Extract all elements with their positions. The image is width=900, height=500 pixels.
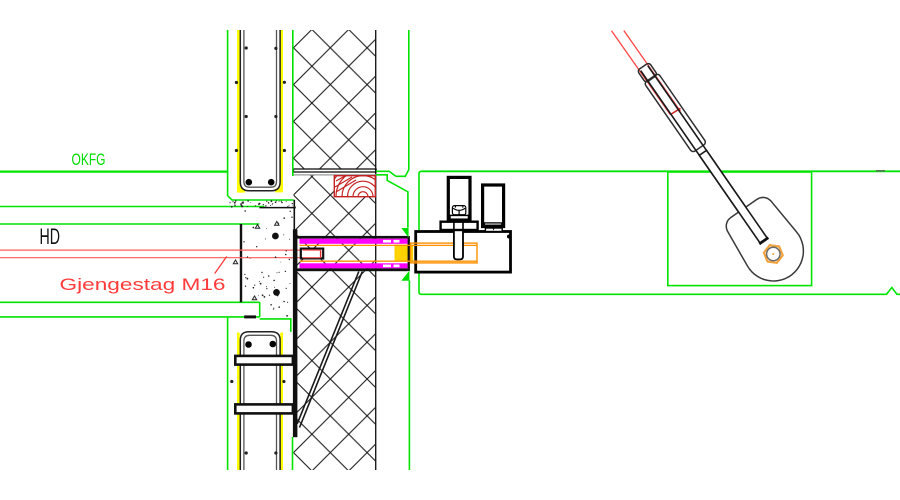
svg-text:Gjengestag M16: Gjengestag M16 <box>60 276 226 294</box>
svg-text:HD: HD <box>40 224 61 249</box>
svg-text:OKFG: OKFG <box>72 151 106 169</box>
